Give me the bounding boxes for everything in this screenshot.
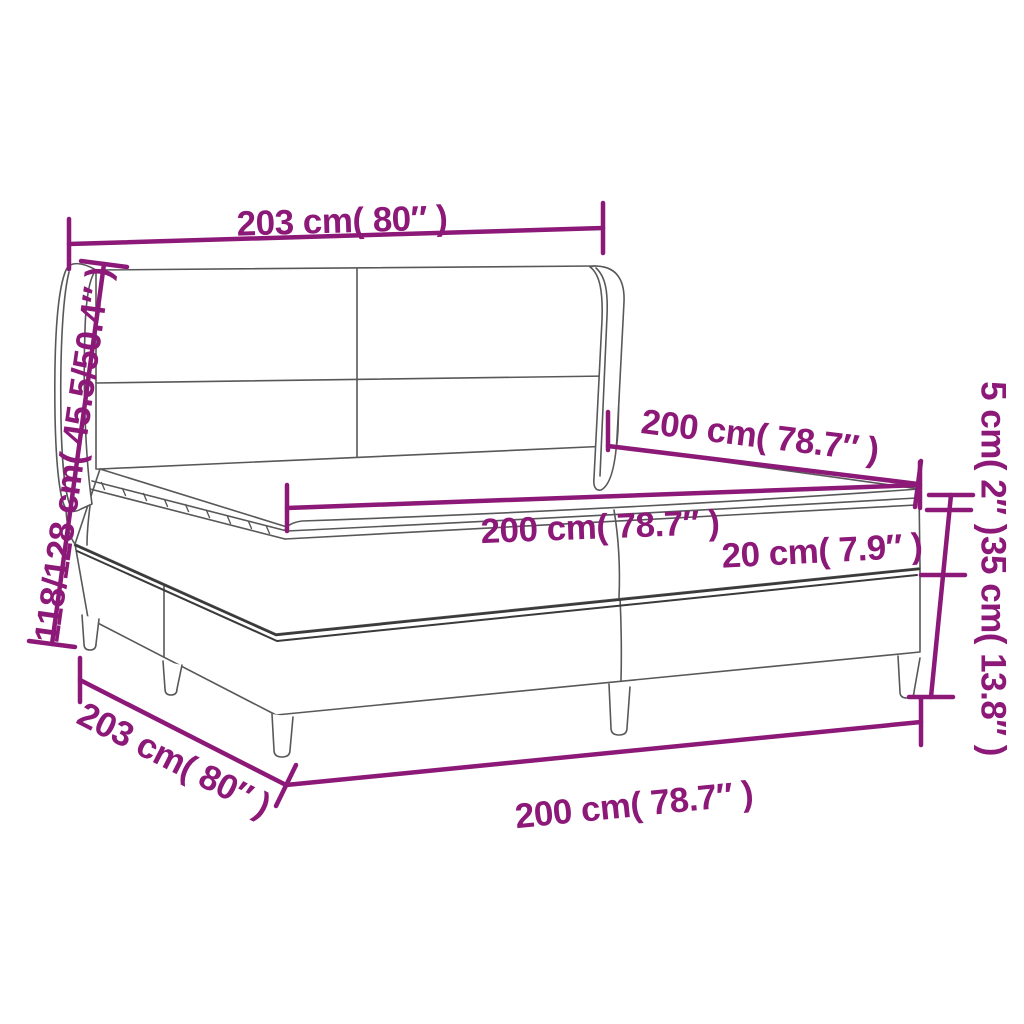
label-topper-thickness: 5 cm( 2″ ) (976, 381, 1011, 535)
leg-front-mid (609, 684, 630, 735)
label-headboard-width: 203 cm( 80″ ) (236, 200, 448, 241)
label-mattress-width: 200 cm( 78.7″ ) (480, 505, 720, 549)
leg-mid-left (163, 661, 182, 695)
leg-front-corner (272, 714, 293, 757)
dimension-diagram: 203 cm( 80″ ) 118/128 cm( 45.5/50.4″ ) 2… (0, 0, 1024, 1024)
leg-front-right (898, 656, 920, 698)
label-base-height: 35 cm( 13.8″ ) (976, 536, 1011, 756)
dim-base-width (286, 699, 921, 785)
leg-back-left (82, 615, 99, 650)
